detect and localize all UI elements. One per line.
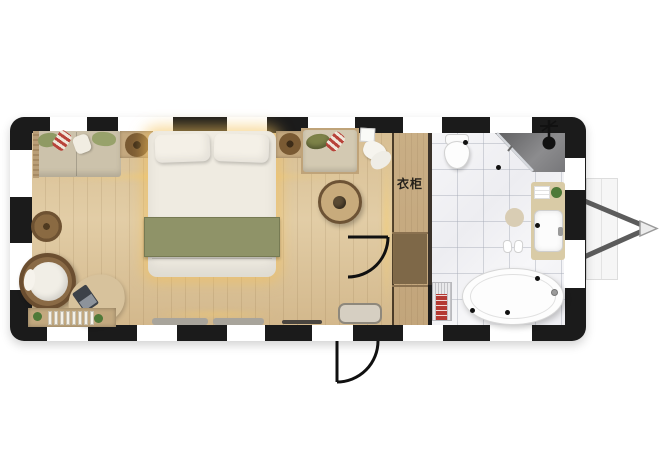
ceiling-light-icon [505,310,510,315]
trailer-steps [586,178,618,280]
plant-icon [551,187,562,198]
window [10,150,32,197]
ceiling-light-icon [470,308,475,313]
tv-console [213,318,264,325]
cove-light [150,312,280,317]
tv-console [152,318,208,325]
entry-bench [338,303,382,324]
window [227,325,265,341]
tv-soundbar [282,320,322,324]
teapot-icon [333,196,346,209]
bath-rug [505,208,524,227]
wardrobe-divider [392,285,428,287]
plant-icon [94,314,103,323]
tub-faucet-icon [551,289,558,296]
rattan-tray-icon [125,133,149,157]
wardrobe-shelves [393,234,427,284]
hitch-tip-icon [640,221,657,236]
wardrobe-label: 衣柜 [392,175,428,192]
bed-foot-line [152,258,272,259]
rattan-pouf [31,211,62,242]
ceiling-light-icon [496,165,501,170]
bathtub-rim [470,274,556,319]
slipper [514,240,524,254]
window [47,325,88,341]
book [66,311,70,325]
plant-icon [33,312,42,321]
towel-stack [534,186,550,199]
red-towel [436,294,447,320]
window [490,117,532,133]
window [403,117,442,133]
wardrobe-cabinet [392,133,428,325]
floor-plan: 衣柜 [0,0,660,466]
book [72,311,76,325]
egg-chair-cushion [29,262,68,301]
window [564,158,585,190]
window [564,240,585,288]
book [60,311,64,325]
window [137,325,177,341]
slipper [503,240,513,254]
rattan-tray-icon [279,133,301,155]
ceiling-light-icon [535,276,540,281]
faucet-icon [558,227,563,236]
ceiling-light-icon [535,223,540,228]
bed-pillow [155,133,211,163]
entry-door [337,341,378,382]
window [403,325,443,341]
window [490,325,532,341]
bed-pillow [214,133,270,163]
book [48,311,52,325]
window [312,325,353,341]
book [84,311,88,325]
ceiling-light-icon [463,140,468,145]
book [54,311,58,325]
book [78,311,82,325]
bed-runner-blanket [144,217,280,257]
